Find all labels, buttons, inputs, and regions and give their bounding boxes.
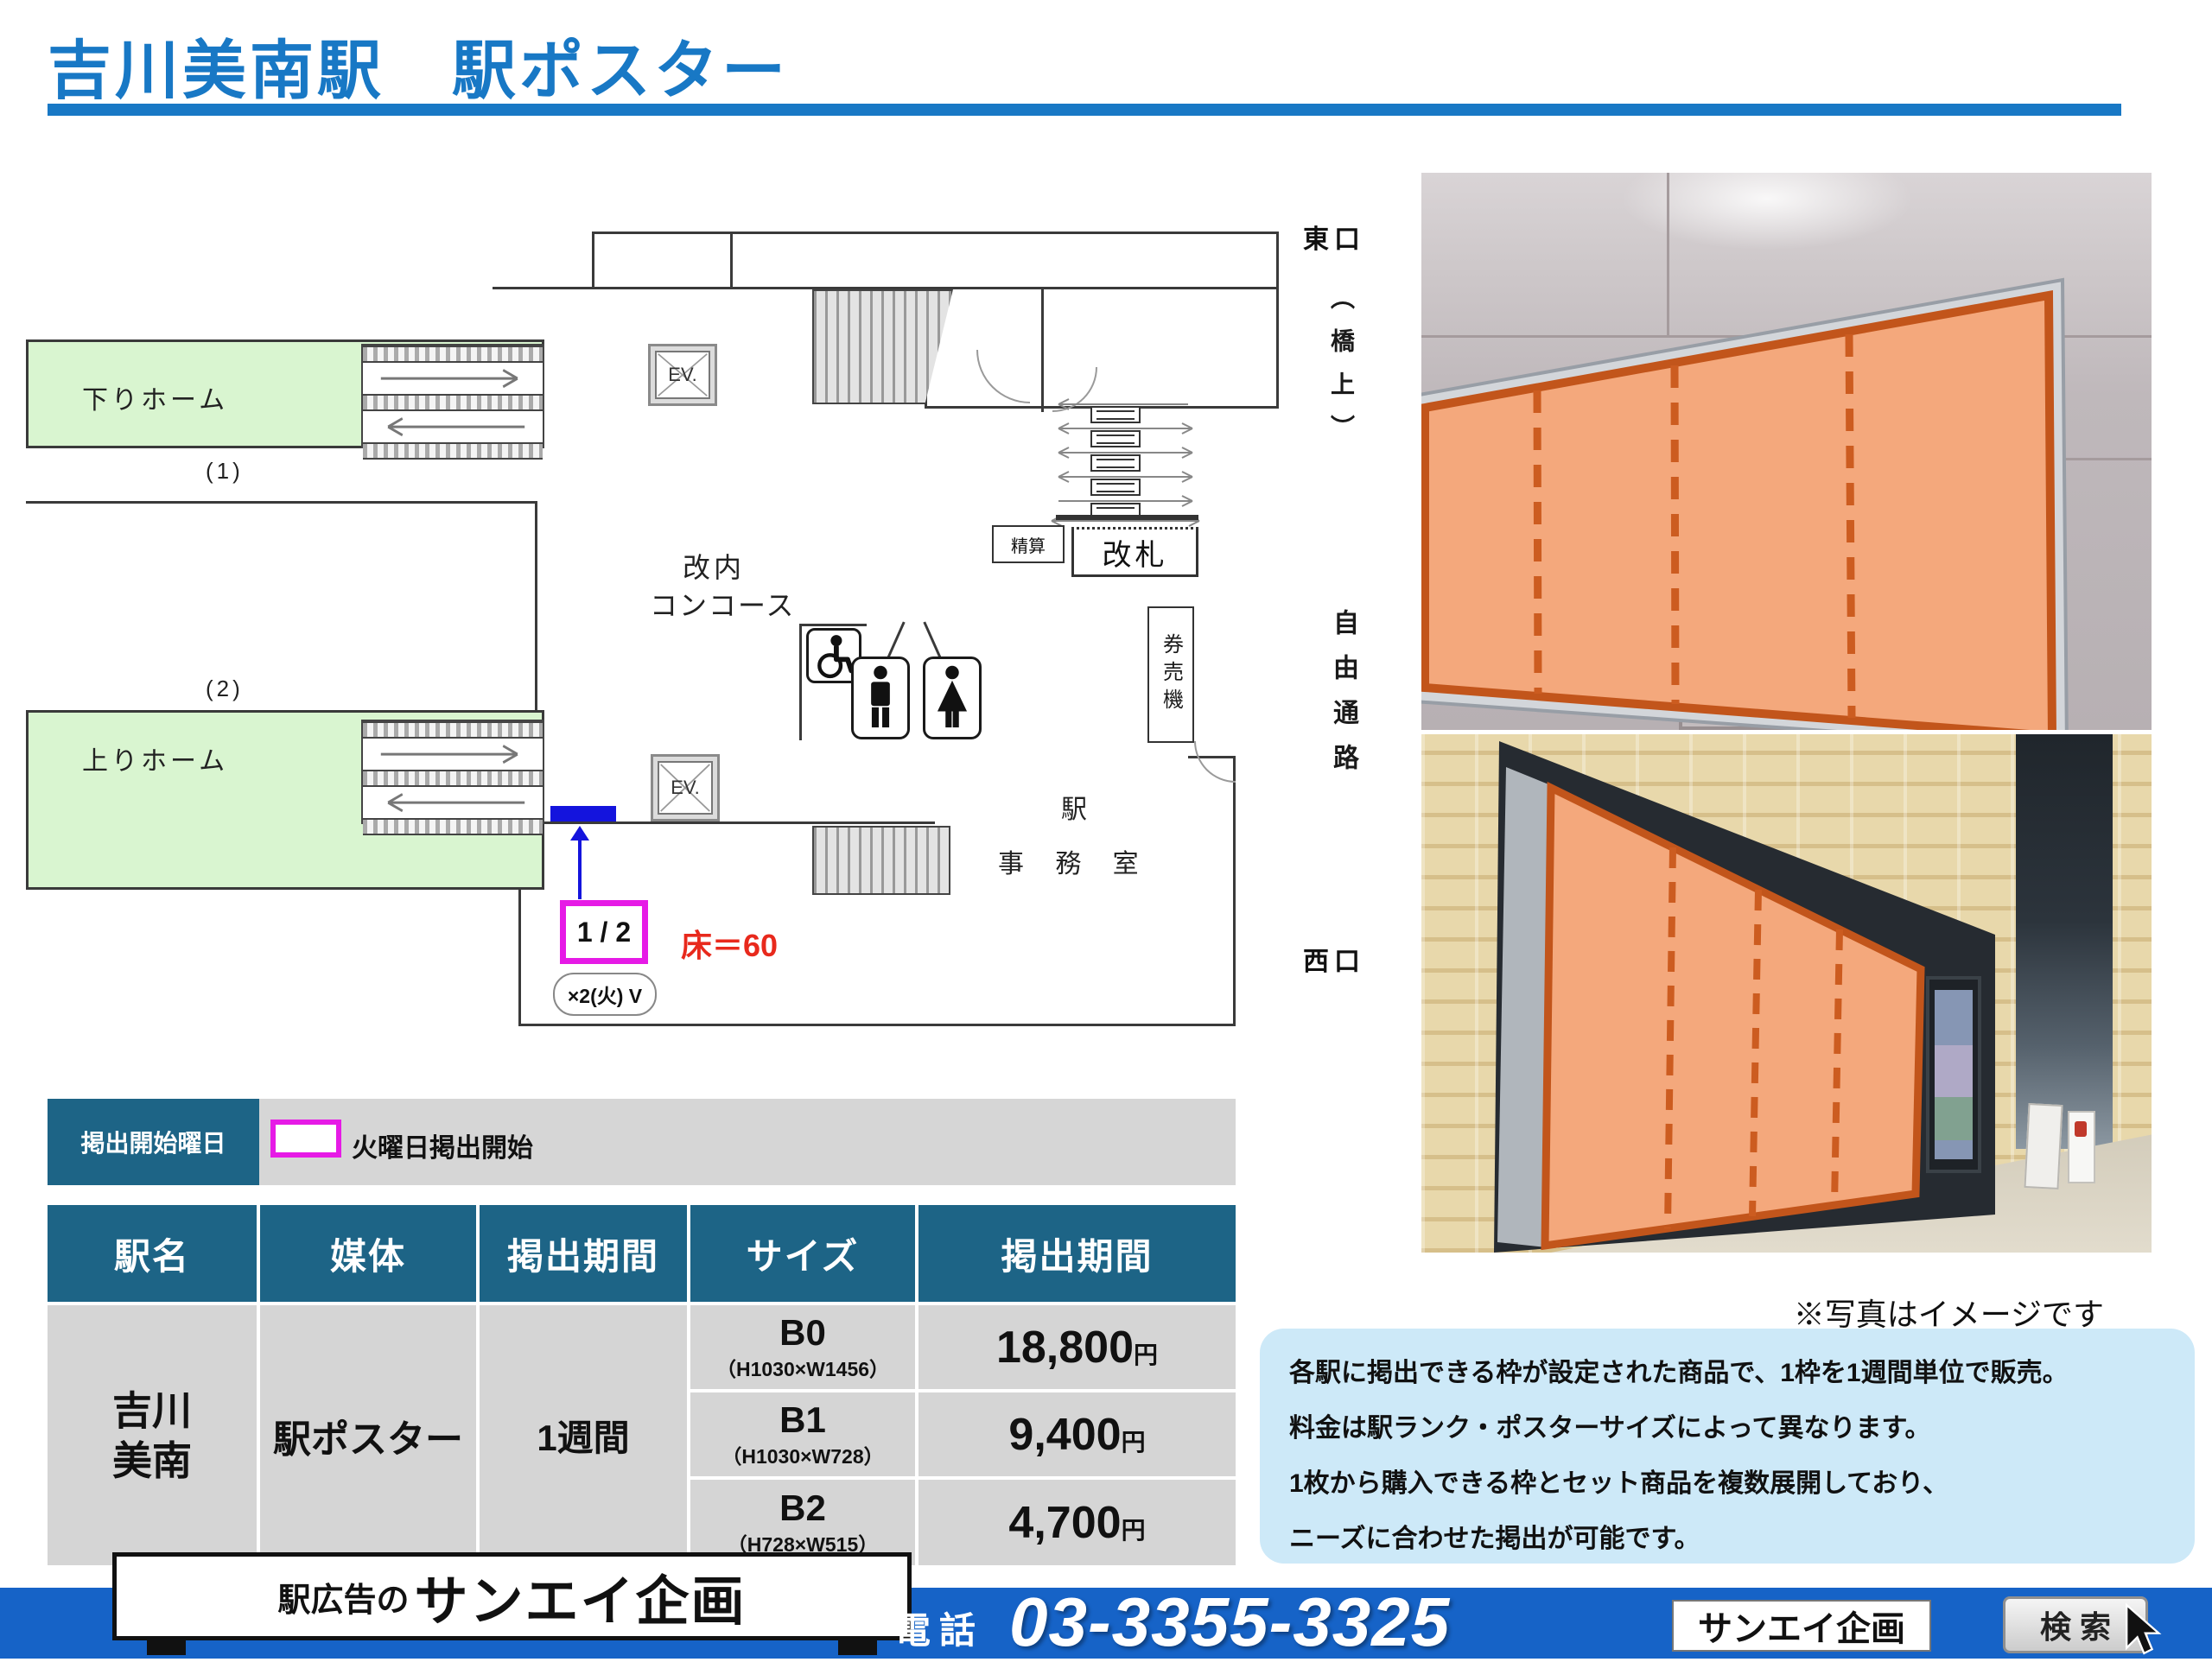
gate-flow-arrows bbox=[1050, 397, 1201, 527]
slot-number: 1 / 2 bbox=[577, 917, 631, 948]
escalator-lane-right bbox=[363, 739, 543, 770]
escalator-lane-left bbox=[363, 787, 543, 818]
col-header-media: 媒体 bbox=[260, 1205, 476, 1302]
concourse-label-line2: コンコース bbox=[650, 584, 795, 624]
ticket-machine-box: 券売機 bbox=[1147, 606, 1194, 743]
tel-number[interactable]: 03-3355-3325 bbox=[1009, 1583, 1450, 1662]
escalator-lane-right bbox=[363, 363, 543, 394]
marker-arrow-line bbox=[578, 839, 582, 899]
door-arc bbox=[976, 350, 1030, 403]
wall bbox=[518, 1024, 1236, 1026]
company-sign: 駅広告の サンエイ企画 bbox=[112, 1552, 912, 1640]
schedule-banner-label-box: 掲出開始曜日 bbox=[48, 1099, 259, 1185]
mens-toilet bbox=[851, 657, 910, 739]
elevator-upper: EV. bbox=[648, 344, 717, 406]
fare-adjust-box: 精算 bbox=[992, 525, 1065, 563]
price-cell-b1: 9,400円 bbox=[918, 1392, 1236, 1476]
schedule-banner: 掲出開始曜日 火曜日掲出開始 bbox=[48, 1099, 1236, 1185]
stairs-strip bbox=[363, 346, 543, 363]
floor-note: 床＝60 bbox=[681, 921, 778, 966]
col-header-station: 駅名 bbox=[48, 1205, 257, 1302]
concourse-label-line1: 改内 bbox=[683, 546, 745, 586]
wall bbox=[1041, 287, 1044, 412]
wall bbox=[1276, 232, 1279, 409]
office-label-line1: 駅 bbox=[1061, 788, 1090, 826]
escalator-lane-left bbox=[363, 411, 543, 442]
cursor-icon bbox=[2121, 1602, 2175, 1656]
station-floor-plan: 下りホーム (1) (2) 上りホーム EV. bbox=[0, 0, 1296, 1080]
info-line: 各駅に掲出できる枠が設定された商品で、1枠を1週間単位で販売。 bbox=[1289, 1351, 2069, 1389]
gate-box: 改札 bbox=[1071, 527, 1198, 577]
slot-count-bubble: ×2(火) V bbox=[553, 973, 657, 1016]
period-cell: 1週間 bbox=[480, 1305, 687, 1565]
escalator-block-lower bbox=[361, 720, 544, 824]
wall bbox=[1233, 758, 1236, 1026]
stairs-strip bbox=[363, 818, 543, 835]
toilet-wall bbox=[799, 624, 867, 626]
price-cell-b0: 18,800円 bbox=[918, 1305, 1236, 1389]
info-line: 1枚から購入できる枠とセット商品を複数展開しており、 bbox=[1289, 1462, 1948, 1500]
platform-up-label: 上りホーム bbox=[82, 739, 228, 777]
poster-slot-marker bbox=[550, 806, 616, 821]
station-name-line2: 美南 bbox=[112, 1436, 192, 1486]
elevator-lower: EV. bbox=[651, 754, 720, 821]
track1-label: (1) bbox=[206, 458, 244, 485]
schedule-banner-note: 火曜日掲出開始 bbox=[352, 1126, 533, 1164]
schedule-banner-label: 掲出開始曜日 bbox=[80, 1125, 226, 1159]
wall bbox=[493, 287, 1279, 289]
location-photo-east bbox=[1421, 173, 2152, 730]
stairs-strip bbox=[363, 442, 543, 460]
elevator-label: EV. bbox=[653, 777, 717, 799]
gate-label: 改札 bbox=[1103, 531, 1168, 574]
slot-number-box: 1 / 2 bbox=[560, 900, 648, 964]
wall bbox=[535, 501, 537, 713]
toilet-wall bbox=[799, 624, 802, 740]
col-header-period: 掲出期間 bbox=[480, 1205, 687, 1302]
direction-west: 西口 bbox=[1303, 940, 1365, 978]
location-photo-west bbox=[1421, 734, 2152, 1253]
size-cell-b0: B0 （H1030×W1456） bbox=[690, 1305, 915, 1389]
platform-down-label: 下りホーム bbox=[82, 378, 228, 416]
office-label-line2: 事 務 室 bbox=[998, 842, 1151, 880]
wall bbox=[592, 232, 594, 289]
escalator-block-upper bbox=[361, 344, 544, 448]
poster-board-west bbox=[1421, 734, 2152, 1253]
fare-adjust-label: 精算 bbox=[1011, 532, 1046, 557]
track2-label: (2) bbox=[206, 676, 244, 702]
media-cell: 駅ポスター bbox=[260, 1305, 476, 1565]
station-name-line1: 吉川 bbox=[112, 1386, 192, 1436]
info-line: ニーズに合わせた掲出が可能です。 bbox=[1289, 1517, 1700, 1555]
info-line: 料金は駅ランク・ポスターサイズによって異なります。 bbox=[1289, 1406, 1931, 1444]
toilet-wall bbox=[923, 621, 942, 660]
poster-board-east bbox=[1421, 173, 2152, 730]
search-button-label: 検 索 bbox=[2040, 1602, 2111, 1647]
staircase-upper bbox=[812, 289, 953, 404]
station-name-cell: 吉川 美南 bbox=[48, 1305, 257, 1565]
direction-bridge: （橋上） bbox=[1324, 285, 1358, 458]
wall bbox=[518, 821, 935, 824]
wall bbox=[592, 232, 1279, 234]
door-arc bbox=[1194, 741, 1236, 783]
product-info-box: 各駅に掲出できる枠が設定された商品で、1枠を1週間単位で販売。 料金は駅ランク・… bbox=[1260, 1329, 2195, 1564]
tel-label: 電話 bbox=[894, 1602, 984, 1654]
direction-east: 東口 bbox=[1303, 218, 1365, 256]
col-header-size: サイズ bbox=[690, 1205, 915, 1302]
company-sign-prefix: 駅広告の bbox=[277, 1573, 409, 1621]
ticket-machine-label: 券売機 bbox=[1156, 633, 1186, 716]
tuesday-frame-swatch bbox=[270, 1120, 341, 1158]
search-input[interactable]: サンエイ企画 bbox=[1672, 1600, 1931, 1652]
wall bbox=[730, 232, 733, 289]
wall bbox=[26, 501, 537, 504]
col-header-price: 掲出期間 bbox=[918, 1205, 1236, 1302]
search-input-value: サンエイ企画 bbox=[1698, 1601, 1905, 1651]
womens-toilet bbox=[923, 657, 982, 739]
direction-passage: 自由通路 bbox=[1324, 609, 1362, 789]
toilet-wall bbox=[886, 621, 905, 660]
stairs-strip bbox=[363, 770, 543, 787]
price-cell-b2: 4,700円 bbox=[918, 1480, 1236, 1565]
stairs-strip bbox=[363, 394, 543, 411]
stairs-strip bbox=[363, 721, 543, 739]
company-sign-name: サンエイ企画 bbox=[415, 1557, 747, 1635]
slot-count-note: ×2(火) V bbox=[568, 980, 642, 1009]
staircase-lower bbox=[812, 826, 950, 895]
size-cell-b1: B1 （H1030×W728） bbox=[690, 1392, 915, 1476]
elevator-label: EV. bbox=[651, 364, 715, 386]
gate-threshold-bar bbox=[1056, 515, 1198, 520]
